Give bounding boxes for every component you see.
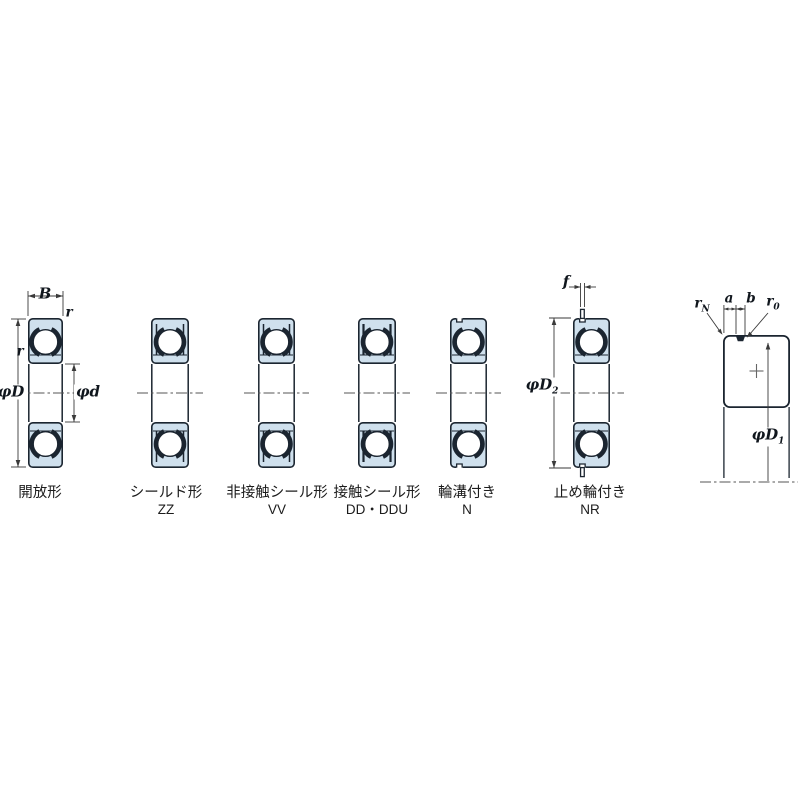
- bearing-n-drawing: [436, 317, 501, 469]
- dim-label-b: b: [746, 292, 755, 306]
- dim-label-phiD2: φD2: [524, 378, 561, 397]
- bearing-nr-drawing: [559, 309, 624, 476]
- caption-open-name: 開放形: [18, 485, 62, 502]
- dim-label-phiD1-sub: 1: [778, 437, 784, 447]
- dim-label-phiD1-base: φD: [752, 426, 779, 444]
- caption-non-contact-seal: 非接触シール形 VV: [226, 485, 328, 517]
- dim-label-phiD: φD: [0, 385, 26, 400]
- caption-snap-ring: 止め輪付き NR: [554, 485, 627, 517]
- caption-non-contact-seal-code: VV: [226, 502, 328, 518]
- bearing-diagram: [0, 0, 800, 800]
- caption-snap-ring-name: 止め輪付き: [554, 485, 627, 502]
- dim-label-phiD2-base: φD: [526, 376, 553, 394]
- dim-label-rN-sub: N: [701, 304, 709, 314]
- caption-open: 開放形: [18, 485, 62, 502]
- caption-snap-ring-code: NR: [554, 502, 627, 518]
- dim-label-phiD2-sub: 2: [552, 387, 558, 397]
- caption-shield: シールド形 ZZ: [130, 485, 203, 517]
- bearing-zz-drawing: [137, 319, 203, 467]
- dim-label-r-outer: r: [65, 306, 72, 320]
- dim-label-r-inner: r: [16, 345, 23, 359]
- caption-contact-seal: 接触シール形 DD・DDU: [334, 485, 421, 517]
- dim-label-rN: rN: [694, 298, 709, 315]
- caption-shield-code: ZZ: [130, 502, 203, 518]
- caption-non-contact-seal-name: 非接触シール形: [226, 485, 328, 502]
- figure-canvas: B r r φD φd f φD2 a b rN r0 φD1 開放形 シールド…: [0, 0, 800, 800]
- caption-groove-code: N: [438, 502, 496, 518]
- dim-label-r0: r0: [766, 296, 779, 313]
- bearing-vv-drawing: [244, 319, 309, 467]
- caption-contact-seal-code: DD・DDU: [334, 502, 421, 518]
- dim-label-a: a: [725, 292, 734, 306]
- dim-label-r0-sub: 0: [773, 302, 779, 312]
- dim-label-B: B: [39, 287, 52, 302]
- dim-label-phid: φd: [74, 385, 102, 400]
- groove-detail-view: [700, 305, 798, 482]
- caption-groove-name: 輪溝付き: [438, 485, 496, 502]
- dim-label-phiD1: φD1: [750, 428, 787, 447]
- caption-shield-name: シールド形: [130, 485, 203, 502]
- dim-label-f: f: [563, 275, 569, 290]
- caption-groove: 輪溝付き N: [438, 485, 496, 517]
- bearing-dd-drawing: [344, 319, 410, 467]
- caption-contact-seal-name: 接触シール形: [334, 485, 421, 502]
